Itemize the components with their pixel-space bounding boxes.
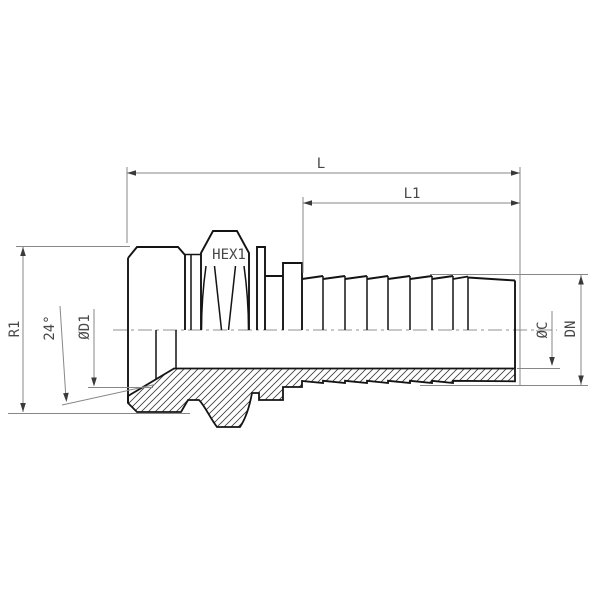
dim-label-L1: L1 — [404, 186, 421, 202]
dimension-L1: L1 — [303, 186, 520, 273]
dim-label-DN: DN — [563, 321, 579, 338]
hex-nut — [201, 231, 249, 330]
thread-relief-groove — [185, 255, 201, 331]
arrowhead — [549, 357, 555, 366]
arrowhead — [63, 393, 69, 402]
hose-fitting-drawing: L L1 R1 24° ØD1 ØC DN HEX1 — [0, 0, 600, 600]
dimension-D1: ØD1 — [77, 309, 153, 388]
dim-label-L: L — [317, 156, 325, 172]
arrowhead — [303, 200, 312, 205]
dimension-C: ØC — [517, 311, 560, 369]
arrowhead — [511, 200, 520, 205]
engineering-drawing-page: L L1 R1 24° ØD1 ØC DN HEX1 — [0, 0, 600, 600]
hex-face-edges — [202, 266, 249, 330]
arrowhead — [511, 170, 520, 175]
dim-label-cone-angle: 24° — [42, 315, 58, 340]
arrowhead — [127, 170, 136, 175]
dim-label-R1: R1 — [7, 321, 23, 338]
collar-tail-stop — [283, 263, 302, 330]
arrowhead — [578, 376, 584, 385]
barb-back-edges — [323, 276, 468, 330]
arrowhead — [91, 378, 97, 387]
collar-front — [257, 247, 265, 330]
arrowhead — [20, 403, 26, 412]
section-hatch-region — [128, 369, 515, 428]
arrowhead — [578, 276, 584, 285]
dim-label-D1: ØD1 — [77, 314, 93, 339]
arrowhead — [20, 247, 26, 256]
hex-size-label: HEX1 — [212, 247, 246, 263]
thread-stud-outline — [128, 247, 185, 330]
dim-label-C: ØC — [535, 322, 551, 339]
hose-tail-barbs — [302, 276, 515, 281]
